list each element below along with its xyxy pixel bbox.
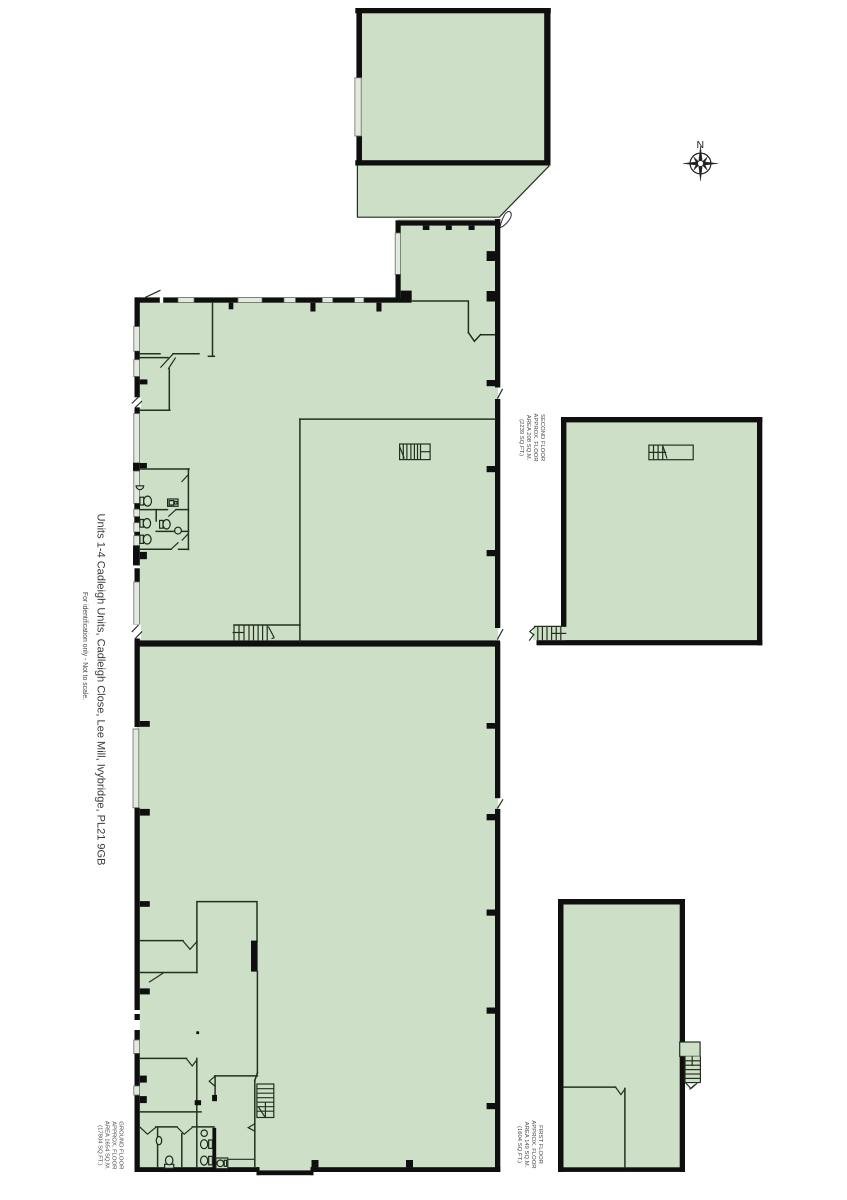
svg-text:AREA 208 SQ.M.: AREA 208 SQ.M. bbox=[525, 415, 531, 461]
svg-text:For identification only - Not: For identification only - Not to scale. bbox=[81, 592, 90, 700]
svg-text:Units 1-4 Cadleigh Units, Cadl: Units 1-4 Cadleigh Units, Cadleigh Close… bbox=[94, 514, 106, 866]
svg-text:AREA 1654 SQ.M.: AREA 1654 SQ.M. bbox=[103, 1121, 109, 1170]
svg-text:APPROX. FLOOR: APPROX. FLOOR bbox=[530, 1120, 536, 1168]
svg-text:(1604 SQ.FT.): (1604 SQ.FT.) bbox=[516, 1126, 522, 1163]
svg-text:APPROX. FLOOR: APPROX. FLOOR bbox=[110, 1121, 116, 1169]
svg-text:GROUND FLOOR: GROUND FLOOR bbox=[117, 1121, 123, 1169]
svg-text:(2239 SQ.FT.): (2239 SQ.FT.) bbox=[518, 419, 524, 456]
svg-text:SECOND FLOOR: SECOND FLOOR bbox=[539, 414, 545, 461]
svg-text:N: N bbox=[697, 139, 705, 151]
svg-text:APPROX. FLOOR: APPROX. FLOOR bbox=[532, 414, 538, 462]
svg-text:FIRST FLOOR: FIRST FLOOR bbox=[537, 1125, 543, 1164]
svg-text:(17804 SQ.FT.): (17804 SQ.FT.) bbox=[96, 1125, 102, 1165]
svg-text:AREA 149 SQ.M.: AREA 149 SQ.M. bbox=[523, 1122, 529, 1168]
